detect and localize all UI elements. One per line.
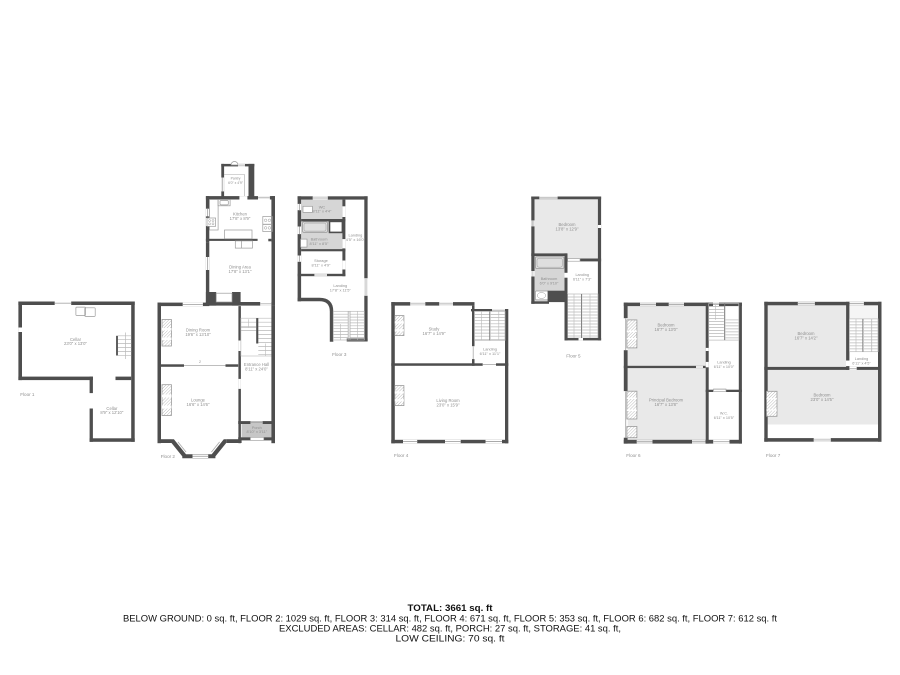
- svg-text:23'0" x 13'0": 23'0" x 13'0": [64, 341, 87, 346]
- svg-text:Landing: Landing: [575, 273, 589, 277]
- svg-text:17'8" x 11'5": 17'8" x 11'5": [330, 287, 352, 292]
- svg-text:Floor 2: Floor 2: [161, 454, 176, 459]
- svg-text:23'0" x 14'5": 23'0" x 14'5": [811, 397, 834, 402]
- svg-text:Floor 3: Floor 3: [332, 352, 347, 357]
- svg-text:TOTAL: 3661 sq. ft: TOTAL: 3661 sq. ft: [408, 603, 494, 614]
- svg-text:6'11" x 4'5": 6'11" x 4'5": [852, 361, 871, 365]
- svg-text:6'11" x 7'3": 6'11" x 7'3": [573, 277, 592, 281]
- svg-text:16'7" x 14'9": 16'7" x 14'9": [423, 331, 446, 336]
- svg-text:6'11" x 10'0": 6'11" x 10'0": [714, 365, 735, 369]
- svg-text:16'7" x 14'2": 16'7" x 14'2": [795, 335, 818, 340]
- svg-text:16'7" x 13'0": 16'7" x 13'0": [655, 327, 678, 332]
- svg-text:Pantry: Pantry: [231, 177, 241, 181]
- svg-text:16'7" x 13'8": 16'7" x 13'8": [655, 402, 678, 407]
- svg-text:23'0" x 15'9": 23'0" x 15'9": [437, 402, 460, 407]
- svg-text:Floor 4: Floor 4: [394, 453, 409, 458]
- svg-text:LOW CEILING: 70 sq. ft: LOW CEILING: 70 sq. ft: [396, 633, 505, 643]
- svg-text:6'0" x 9'10": 6'0" x 9'10": [540, 281, 559, 285]
- svg-text:8'9" x 12'10": 8'9" x 12'10": [100, 410, 123, 415]
- svg-text:17'8" x 13'1": 17'8" x 13'1": [229, 269, 252, 274]
- svg-text:16'6" x 14'6": 16'6" x 14'6": [187, 402, 210, 407]
- svg-text:BELOW GROUND: 0 sq. ft, FLOOR: BELOW GROUND: 0 sq. ft, FLOOR 2: 1029 sq…: [123, 613, 777, 623]
- svg-text:8'11" x 8'5": 8'11" x 8'5": [310, 241, 330, 246]
- svg-text:13'8" x 12'9": 13'8" x 12'9": [556, 226, 579, 231]
- svg-text:8'10" x 3'11": 8'10" x 3'11": [247, 430, 268, 434]
- svg-text:Porch: Porch: [252, 426, 262, 430]
- svg-text:EXCLUDED AREAS: CELLAR: 482 sq: EXCLUDED AREAS: CELLAR: 482 sq. ft, PORC…: [279, 624, 621, 634]
- svg-text:8'11" x 24'0": 8'11" x 24'0": [245, 366, 268, 371]
- svg-text:19'6" x 13'10": 19'6" x 13'10": [185, 332, 211, 337]
- svg-text:8'11" x 4'4": 8'11" x 4'4": [313, 209, 333, 214]
- svg-text:Bathroom: Bathroom: [541, 277, 557, 281]
- svg-text:4'5" x 16'0": 4'5" x 16'0": [346, 237, 366, 242]
- svg-text:Floor 1: Floor 1: [20, 392, 35, 397]
- svg-text:6'0" x 4'9": 6'0" x 4'9": [228, 181, 244, 185]
- svg-text:2: 2: [199, 360, 201, 364]
- svg-text:8'11" x 4'9": 8'11" x 4'9": [312, 262, 332, 267]
- svg-text:Landing: Landing: [855, 357, 869, 361]
- svg-text:Floor 5: Floor 5: [566, 354, 581, 359]
- svg-text:17'8" x 8'9": 17'8" x 8'9": [230, 216, 251, 221]
- svg-text:Landing: Landing: [717, 361, 731, 365]
- svg-text:6'11" x 11'1": 6'11" x 11'1": [480, 351, 501, 356]
- svg-text:W.C.: W.C.: [720, 412, 728, 416]
- svg-text:6'11" x 10'5": 6'11" x 10'5": [714, 416, 735, 420]
- svg-text:Floor 6: Floor 6: [626, 453, 641, 458]
- svg-text:Floor 7: Floor 7: [766, 453, 781, 458]
